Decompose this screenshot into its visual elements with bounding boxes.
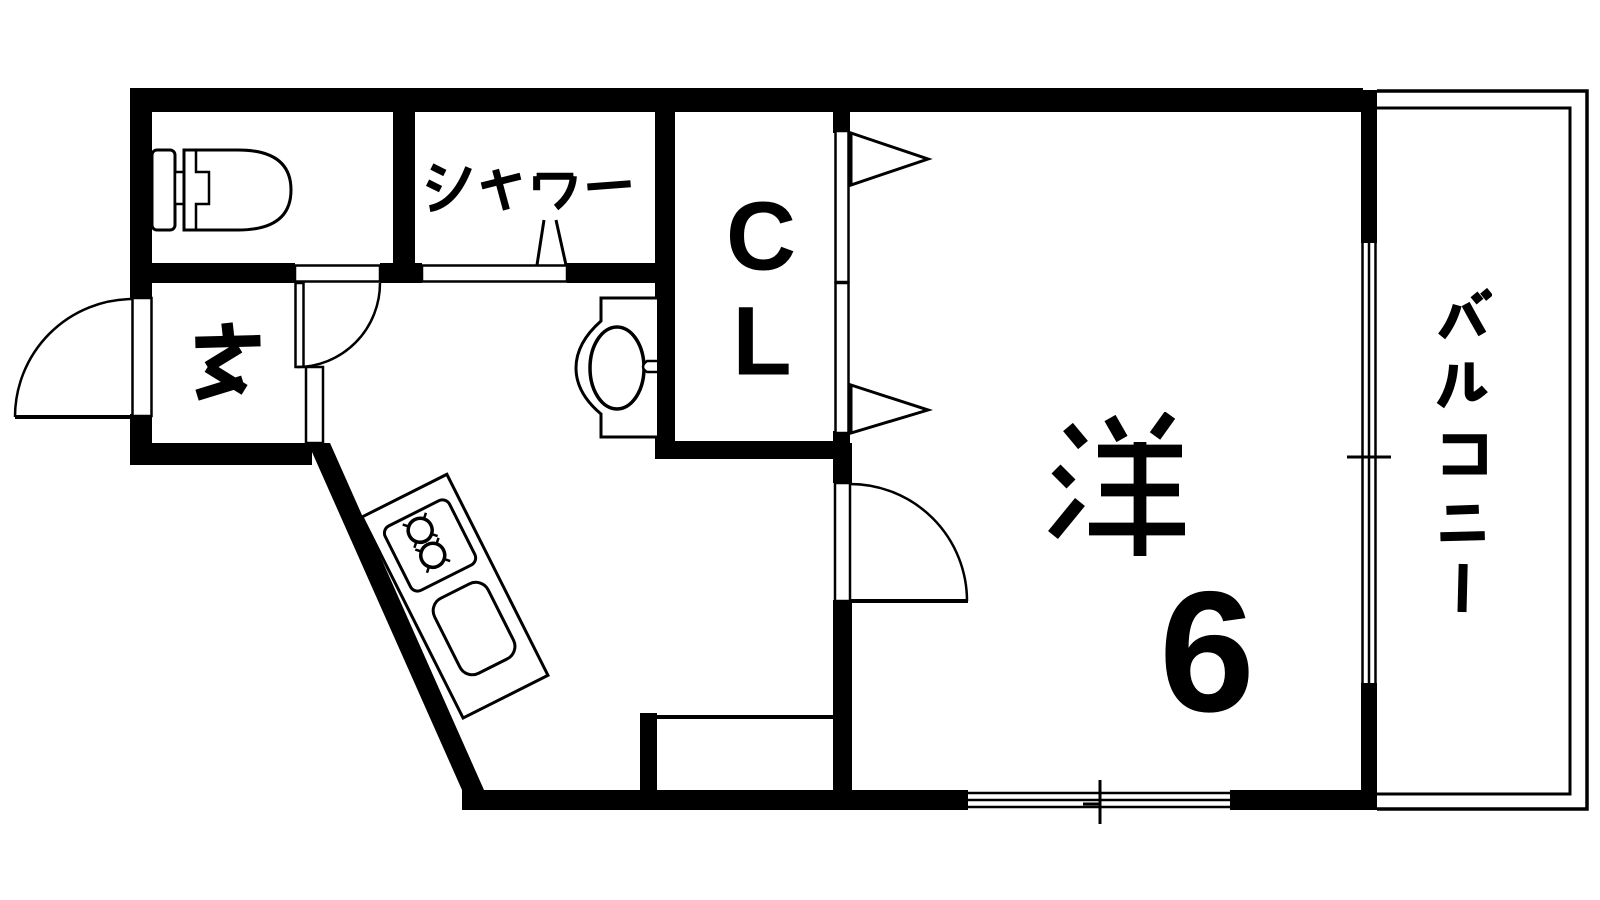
- closet-door-marker-bottom: [851, 385, 928, 433]
- wall-shower-closet: [655, 112, 675, 459]
- entrance-doorway-frame: [133, 298, 152, 416]
- toilet-tank: [152, 150, 175, 230]
- glyph-ル: [1432, 354, 1492, 414]
- shower-room-label: [420, 160, 636, 214]
- glyph-ワ: [528, 160, 582, 214]
- glyph-バ: [1432, 286, 1492, 346]
- western-room-size: 6: [1159, 566, 1255, 738]
- glyph-ニ: [1432, 490, 1492, 550]
- wall-toilet-bottom: [130, 263, 295, 283]
- wall-room-upper: [833, 443, 852, 483]
- shower-door-line-left: [537, 220, 544, 265]
- toilet-doorway-frame: [295, 266, 380, 282]
- glyph-ー: [582, 160, 636, 214]
- floor-plan-canvas: [0, 0, 1600, 900]
- wall-band-right: [567, 263, 657, 283]
- wall-entrance-bottom: [130, 443, 312, 465]
- room-doorway-frame: [835, 483, 850, 601]
- glyph-ャ: [474, 160, 528, 214]
- toilet-icon: [152, 150, 291, 230]
- toilet-door-leaf: [296, 283, 304, 367]
- wall-closet-bottom: [655, 441, 847, 459]
- entrance-label: [183, 316, 271, 404]
- closet-door-marker-top: [851, 133, 928, 185]
- shower-threshold: [422, 266, 567, 282]
- glyph-ー: [1432, 558, 1492, 618]
- wall-room-lower: [833, 600, 852, 792]
- closet-label-c: C: [726, 188, 796, 285]
- wall-toilet-shower: [393, 112, 415, 283]
- balcony-window-right: [1347, 243, 1391, 683]
- glyph-シ: [420, 160, 474, 214]
- wall-bottom-left: [462, 790, 968, 810]
- washbasin-bowl: [590, 327, 644, 409]
- closet-door-panel-bottom: [836, 283, 849, 433]
- wall-right-lower: [1361, 683, 1377, 793]
- entrance-door-swing-arc: [15, 299, 133, 417]
- wall-top: [130, 88, 1363, 112]
- toilet-bowl: [184, 150, 291, 230]
- entrance-partition: [306, 367, 323, 443]
- room-door-swing-arc: [850, 484, 967, 601]
- toilet-door-swing-arc: [297, 283, 380, 367]
- wall-bottom-right: [1230, 790, 1377, 810]
- western-room-label: [1038, 412, 1188, 562]
- closet-label-l: L: [732, 293, 791, 390]
- glyph-玄: [183, 316, 271, 404]
- floor-plan-page: C L 6 シャワー 玄 洋 バルコニー: [0, 0, 1600, 900]
- wall-nook-stub: [640, 713, 657, 790]
- shower-door-line-right: [556, 220, 566, 265]
- washbasin-icon: [576, 298, 657, 437]
- closet-door-panel-top: [836, 131, 849, 282]
- balcony-label: [1432, 286, 1492, 618]
- room-window-bottom: [968, 780, 1230, 824]
- wall-right-upper: [1361, 90, 1377, 243]
- washbasin-faucet: [643, 361, 657, 372]
- glyph-洋: [1038, 412, 1188, 562]
- glyph-コ: [1432, 422, 1492, 482]
